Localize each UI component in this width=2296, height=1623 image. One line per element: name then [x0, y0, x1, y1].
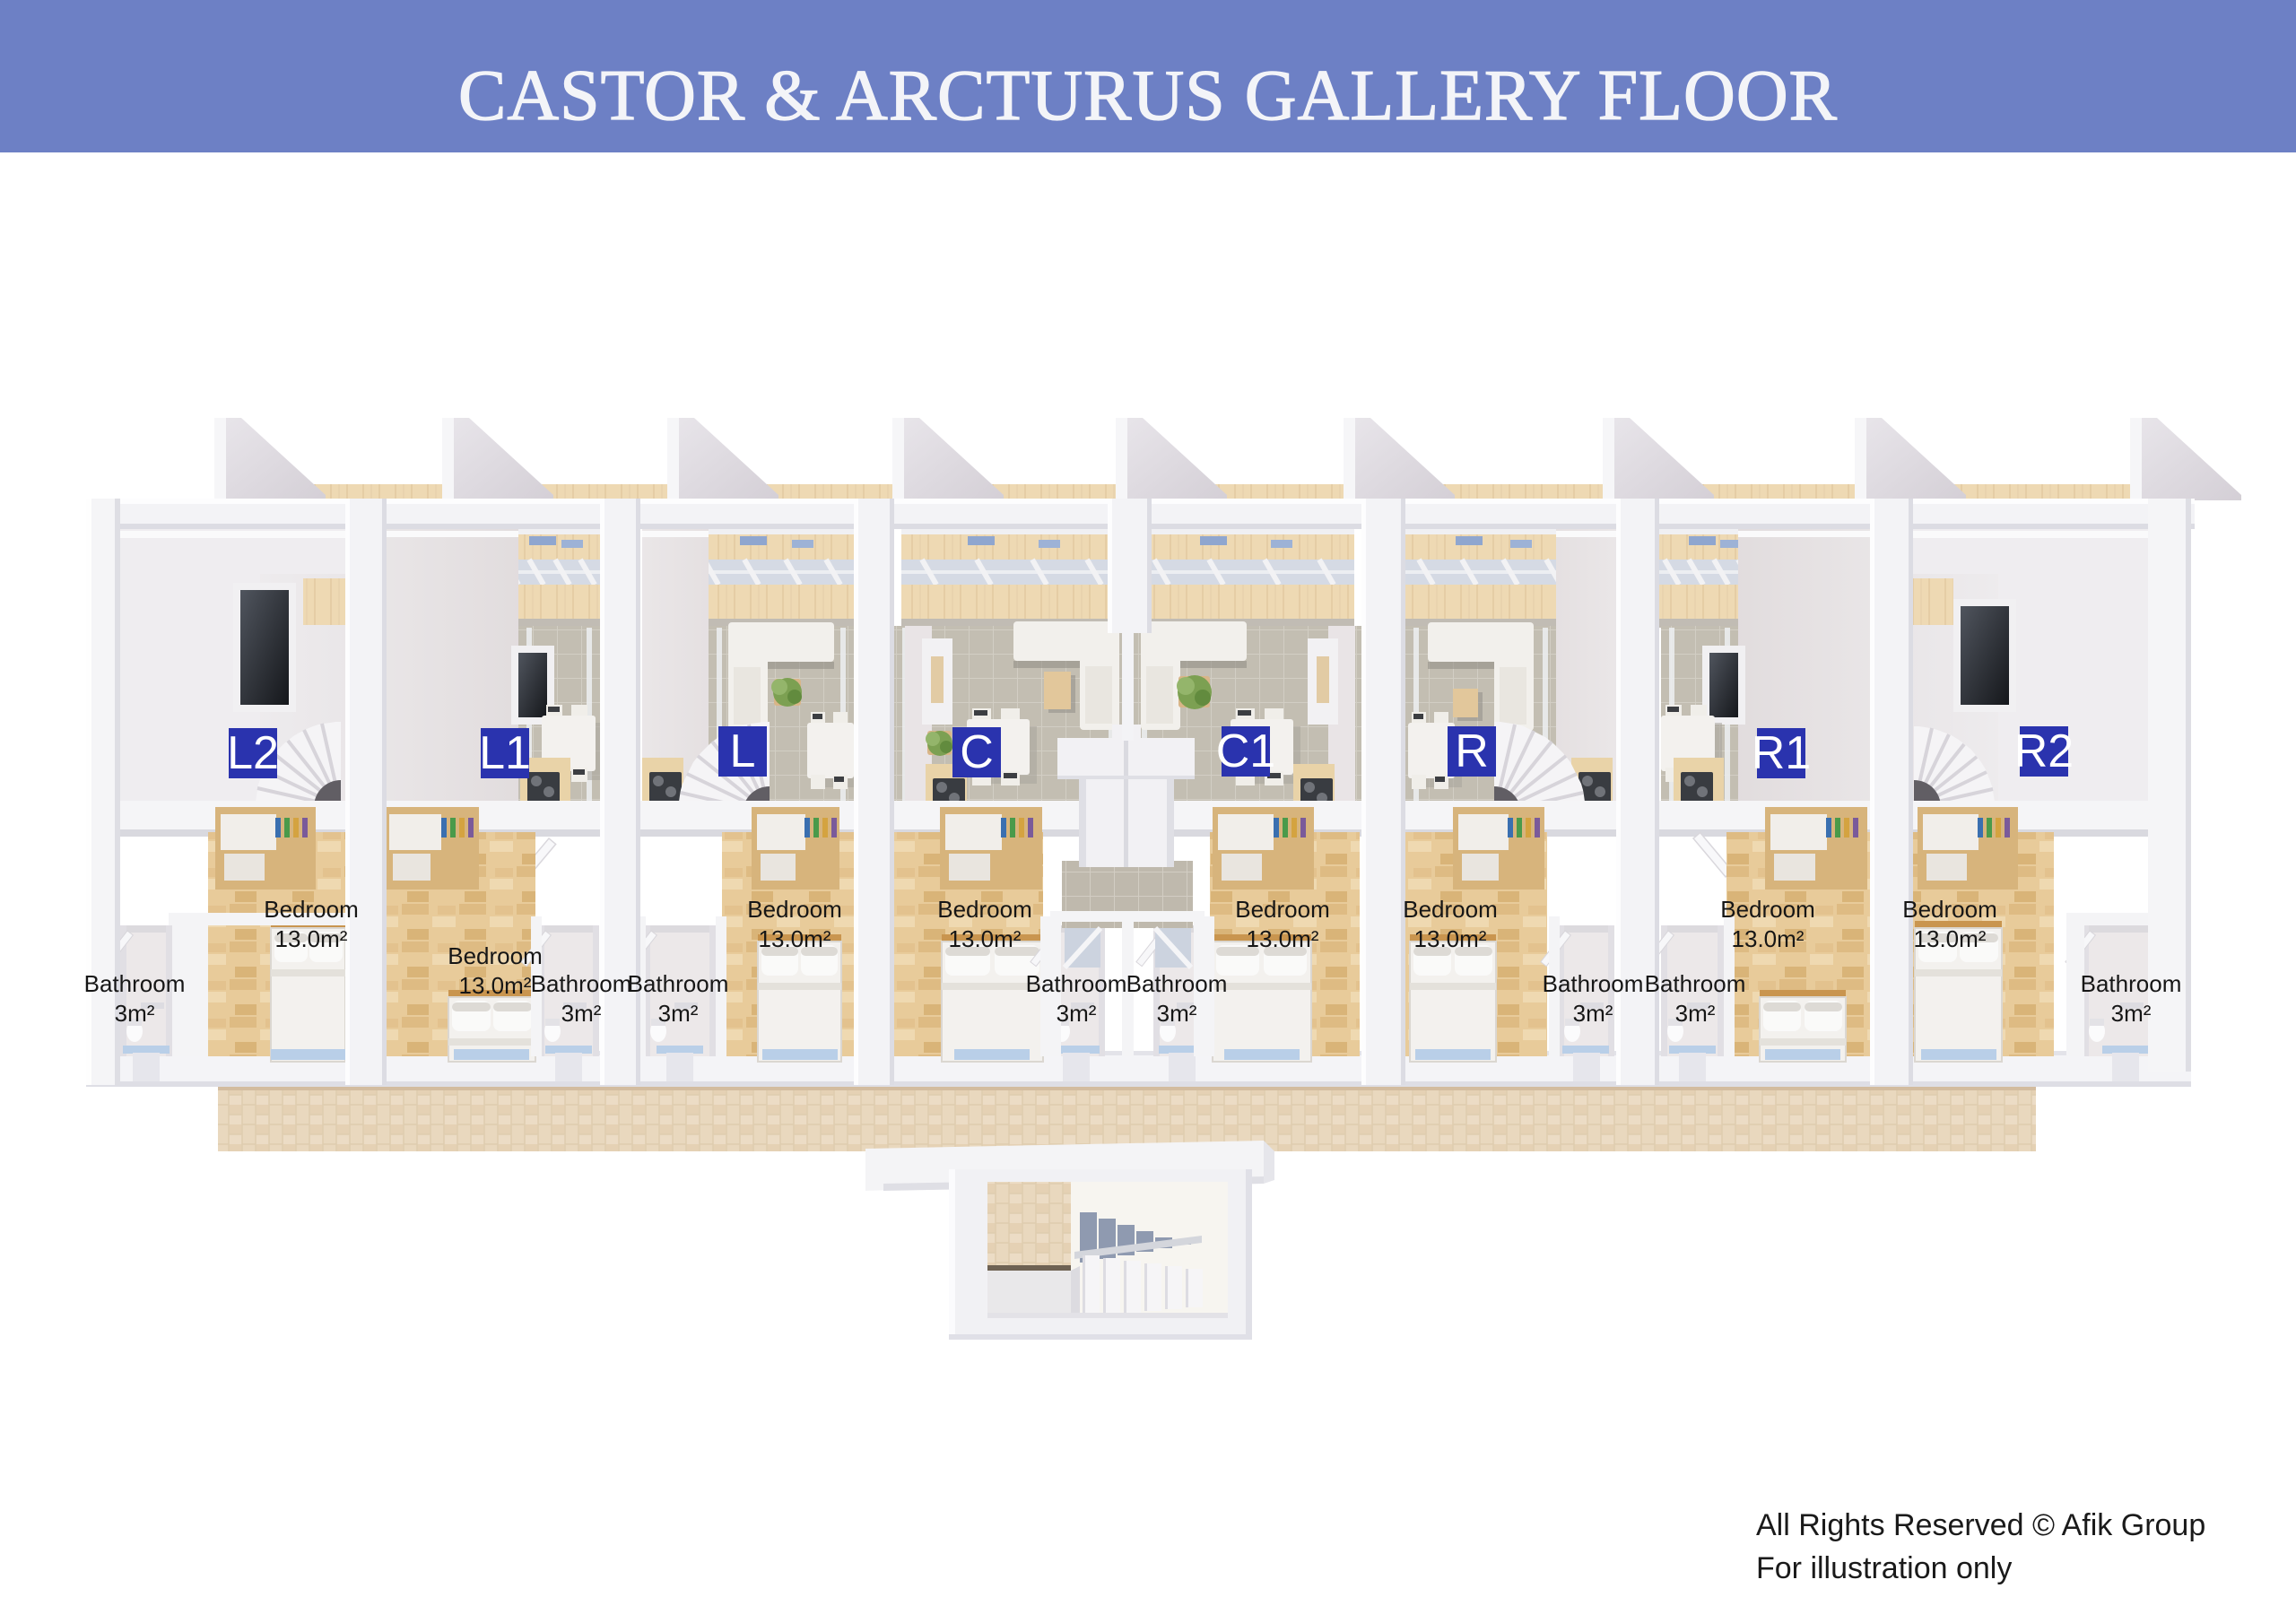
svg-text:Bathroom: Bathroom: [628, 970, 729, 997]
svg-text:Bathroom: Bathroom: [531, 970, 632, 997]
svg-text:3m²: 3m²: [1573, 1000, 1613, 1027]
svg-text:3m²: 3m²: [561, 1000, 602, 1027]
svg-text:13.0m²: 13.0m²: [275, 925, 348, 952]
svg-text:Bedroom: Bedroom: [1235, 896, 1330, 923]
svg-text:Bedroom: Bedroom: [264, 896, 359, 923]
svg-text:13.0m²: 13.0m²: [759, 925, 831, 952]
svg-text:Bedroom: Bedroom: [448, 942, 543, 969]
svg-text:R2: R2: [2014, 725, 2074, 777]
svg-text:Bathroom: Bathroom: [1026, 970, 1127, 997]
svg-text:13.0m²: 13.0m²: [1914, 925, 1987, 952]
svg-text:Bathroom: Bathroom: [1543, 970, 1644, 997]
svg-text:For illustration only: For illustration only: [1756, 1551, 2012, 1585]
svg-text:Bathroom: Bathroom: [84, 970, 186, 997]
svg-text:Bathroom: Bathroom: [1126, 970, 1228, 997]
svg-text:L2: L2: [227, 727, 279, 779]
svg-text:C: C: [960, 726, 994, 778]
svg-text:13.0m²: 13.0m²: [459, 972, 532, 999]
svg-text:R1: R1: [1752, 727, 1811, 779]
svg-text:Bathroom: Bathroom: [2081, 970, 2182, 997]
svg-text:13.0m²: 13.0m²: [1732, 925, 1805, 952]
svg-text:Bedroom: Bedroom: [1720, 896, 1815, 923]
svg-text:13.0m²: 13.0m²: [1247, 925, 1319, 952]
svg-text:Bedroom: Bedroom: [937, 896, 1032, 923]
svg-text:3m²: 3m²: [1675, 1000, 1716, 1027]
svg-text:3m²: 3m²: [2111, 1000, 2152, 1027]
svg-text:C1: C1: [1216, 725, 1275, 777]
svg-text:All Rights Reserved © Afik Gro: All Rights Reserved © Afik Group: [1756, 1508, 2205, 1542]
svg-text:Bathroom: Bathroom: [1645, 970, 1746, 997]
svg-text:13.0m²: 13.0m²: [949, 925, 1022, 952]
svg-text:Bedroom: Bedroom: [1403, 896, 1498, 923]
svg-text:3m²: 3m²: [1157, 1000, 1197, 1027]
svg-text:3m²: 3m²: [1057, 1000, 1097, 1027]
svg-text:3m²: 3m²: [115, 1000, 155, 1027]
svg-text:3m²: 3m²: [658, 1000, 699, 1027]
svg-text:13.0m²: 13.0m²: [1414, 925, 1487, 952]
svg-text:L1: L1: [479, 727, 531, 779]
svg-text:L: L: [730, 725, 756, 777]
svg-text:CASTOR & ARCTURUS GALLERY FLOO: CASTOR & ARCTURUS GALLERY FLOOR: [458, 56, 1838, 135]
svg-text:Bedroom: Bedroom: [1902, 896, 1997, 923]
svg-text:Bedroom: Bedroom: [747, 896, 842, 923]
svg-text:R: R: [1455, 725, 1489, 777]
